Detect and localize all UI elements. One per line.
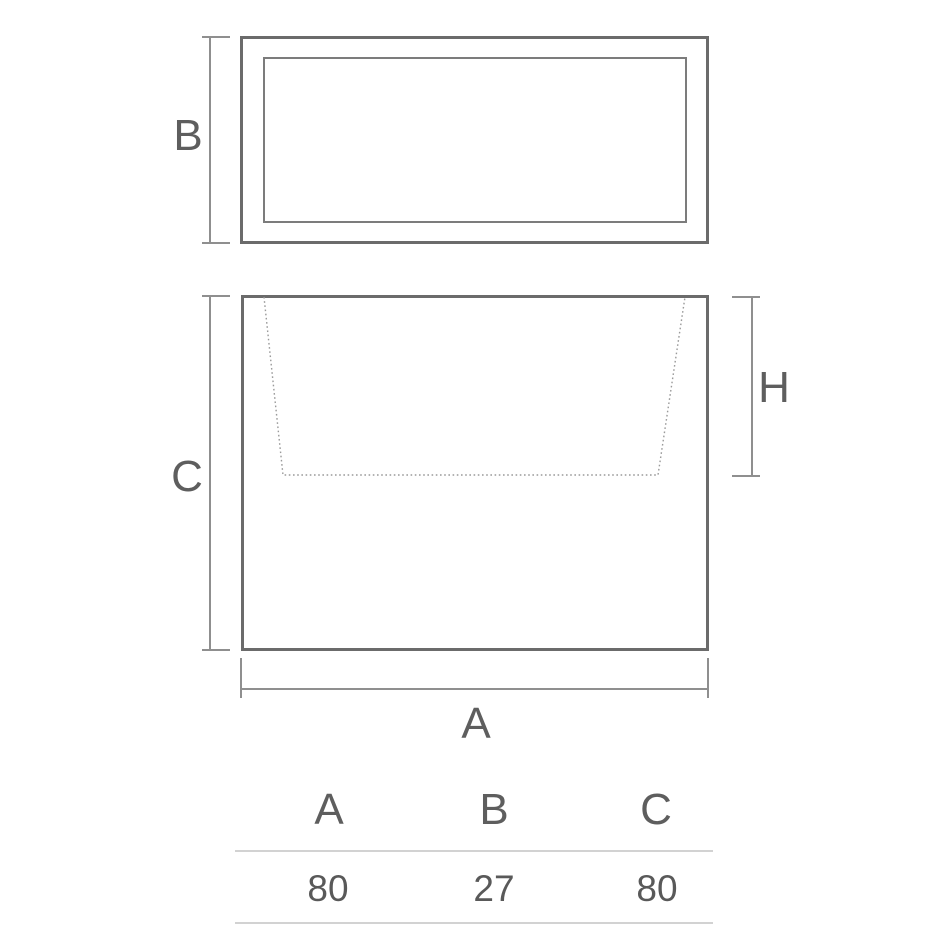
dimension-a-line bbox=[241, 688, 708, 690]
dimension-h-tick-top bbox=[732, 296, 760, 298]
dimension-b-tick-top bbox=[202, 36, 230, 38]
table-value-b: 27 bbox=[459, 869, 529, 909]
dimension-c-tick-bottom bbox=[202, 649, 230, 651]
table-value-c: 80 bbox=[622, 869, 692, 909]
dimension-h-label: H bbox=[750, 364, 798, 412]
dimension-c-tick-top bbox=[202, 295, 230, 297]
dimension-h-tick-bottom bbox=[732, 475, 760, 477]
table-header-a: A bbox=[299, 787, 359, 833]
dimension-a-tick-right bbox=[707, 658, 709, 698]
dimension-b-tick-bottom bbox=[202, 242, 230, 244]
table-value-a: 80 bbox=[293, 869, 363, 909]
table-rule-top bbox=[235, 850, 713, 852]
dimension-c-label: C bbox=[163, 453, 211, 501]
table-header-c: C bbox=[626, 787, 686, 833]
table-header-b: B bbox=[464, 787, 524, 833]
dimension-diagram: B C H A bbox=[0, 0, 950, 950]
dimension-a-tick-left bbox=[240, 658, 242, 698]
top-view-inner-rect bbox=[263, 57, 687, 223]
table-rule-bottom bbox=[235, 922, 713, 924]
dimension-a-label: A bbox=[452, 700, 500, 748]
dimension-b-label: B bbox=[164, 112, 212, 160]
cavity-dashed-outline bbox=[240, 294, 710, 489]
